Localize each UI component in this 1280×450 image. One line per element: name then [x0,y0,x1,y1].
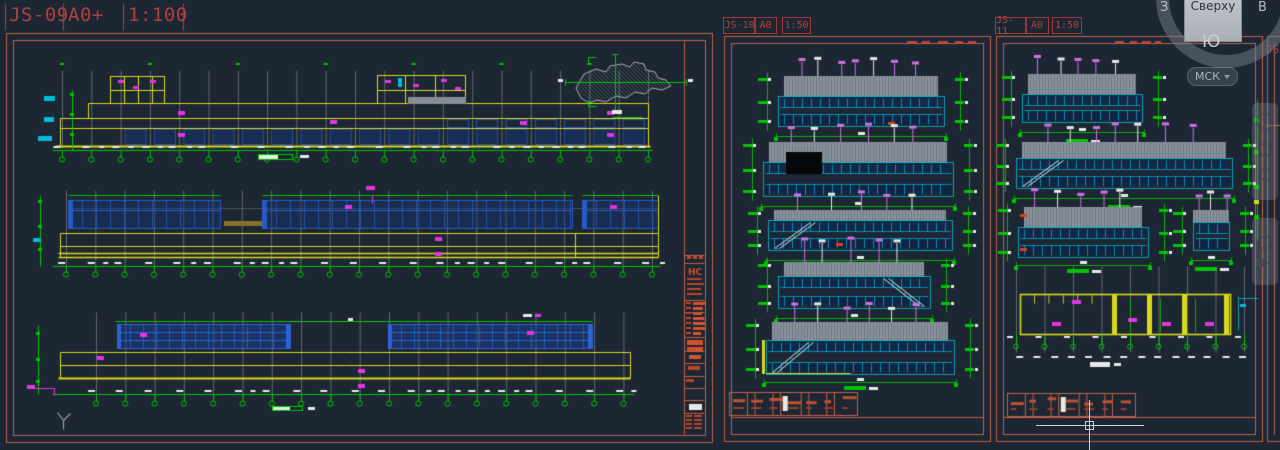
viewcube-west-label[interactable]: З [1160,0,1168,15]
cad-model-space[interactable]: JS-09 A0+ 1:100 JS-10 A0 1:50 JS-11 A0 1… [0,0,1280,450]
drawing-canvas[interactable] [0,0,1280,450]
navigation-wheel-icon[interactable] [1256,113,1274,131]
sheet3-paper: A0 [1025,17,1049,34]
sheet1-id: JS-09 [9,4,69,26]
sheet2-id: JS-10 [723,17,756,34]
sheet1-paper: A0+ [68,4,104,26]
chevron-down-icon [1224,75,1230,79]
viewcube-east-label[interactable]: В [1258,0,1267,15]
zoom-icon[interactable] [1259,168,1272,181]
showmotion-icon[interactable] [1261,258,1269,268]
sheet2-scale: 1:50 [782,17,811,34]
ucs-selector-button[interactable]: МСК [1187,67,1238,86]
crosshair-pickbox [1085,421,1094,430]
orbit-icon[interactable] [1258,236,1272,249]
sheet2-paper: A0 [754,17,777,34]
sheet3-id: JS-11 [995,17,1027,34]
viewcube-south-label[interactable]: Ю [1202,32,1220,52]
pan-icon[interactable] [1258,143,1272,156]
ucs-label: МСК [1195,70,1220,83]
navigation-bar-lower[interactable] [1252,218,1278,285]
navigation-bar-upper[interactable] [1252,103,1278,200]
sheet1-scale: 1:100 [128,4,188,26]
sheet3-scale: 1:50 [1052,17,1082,34]
